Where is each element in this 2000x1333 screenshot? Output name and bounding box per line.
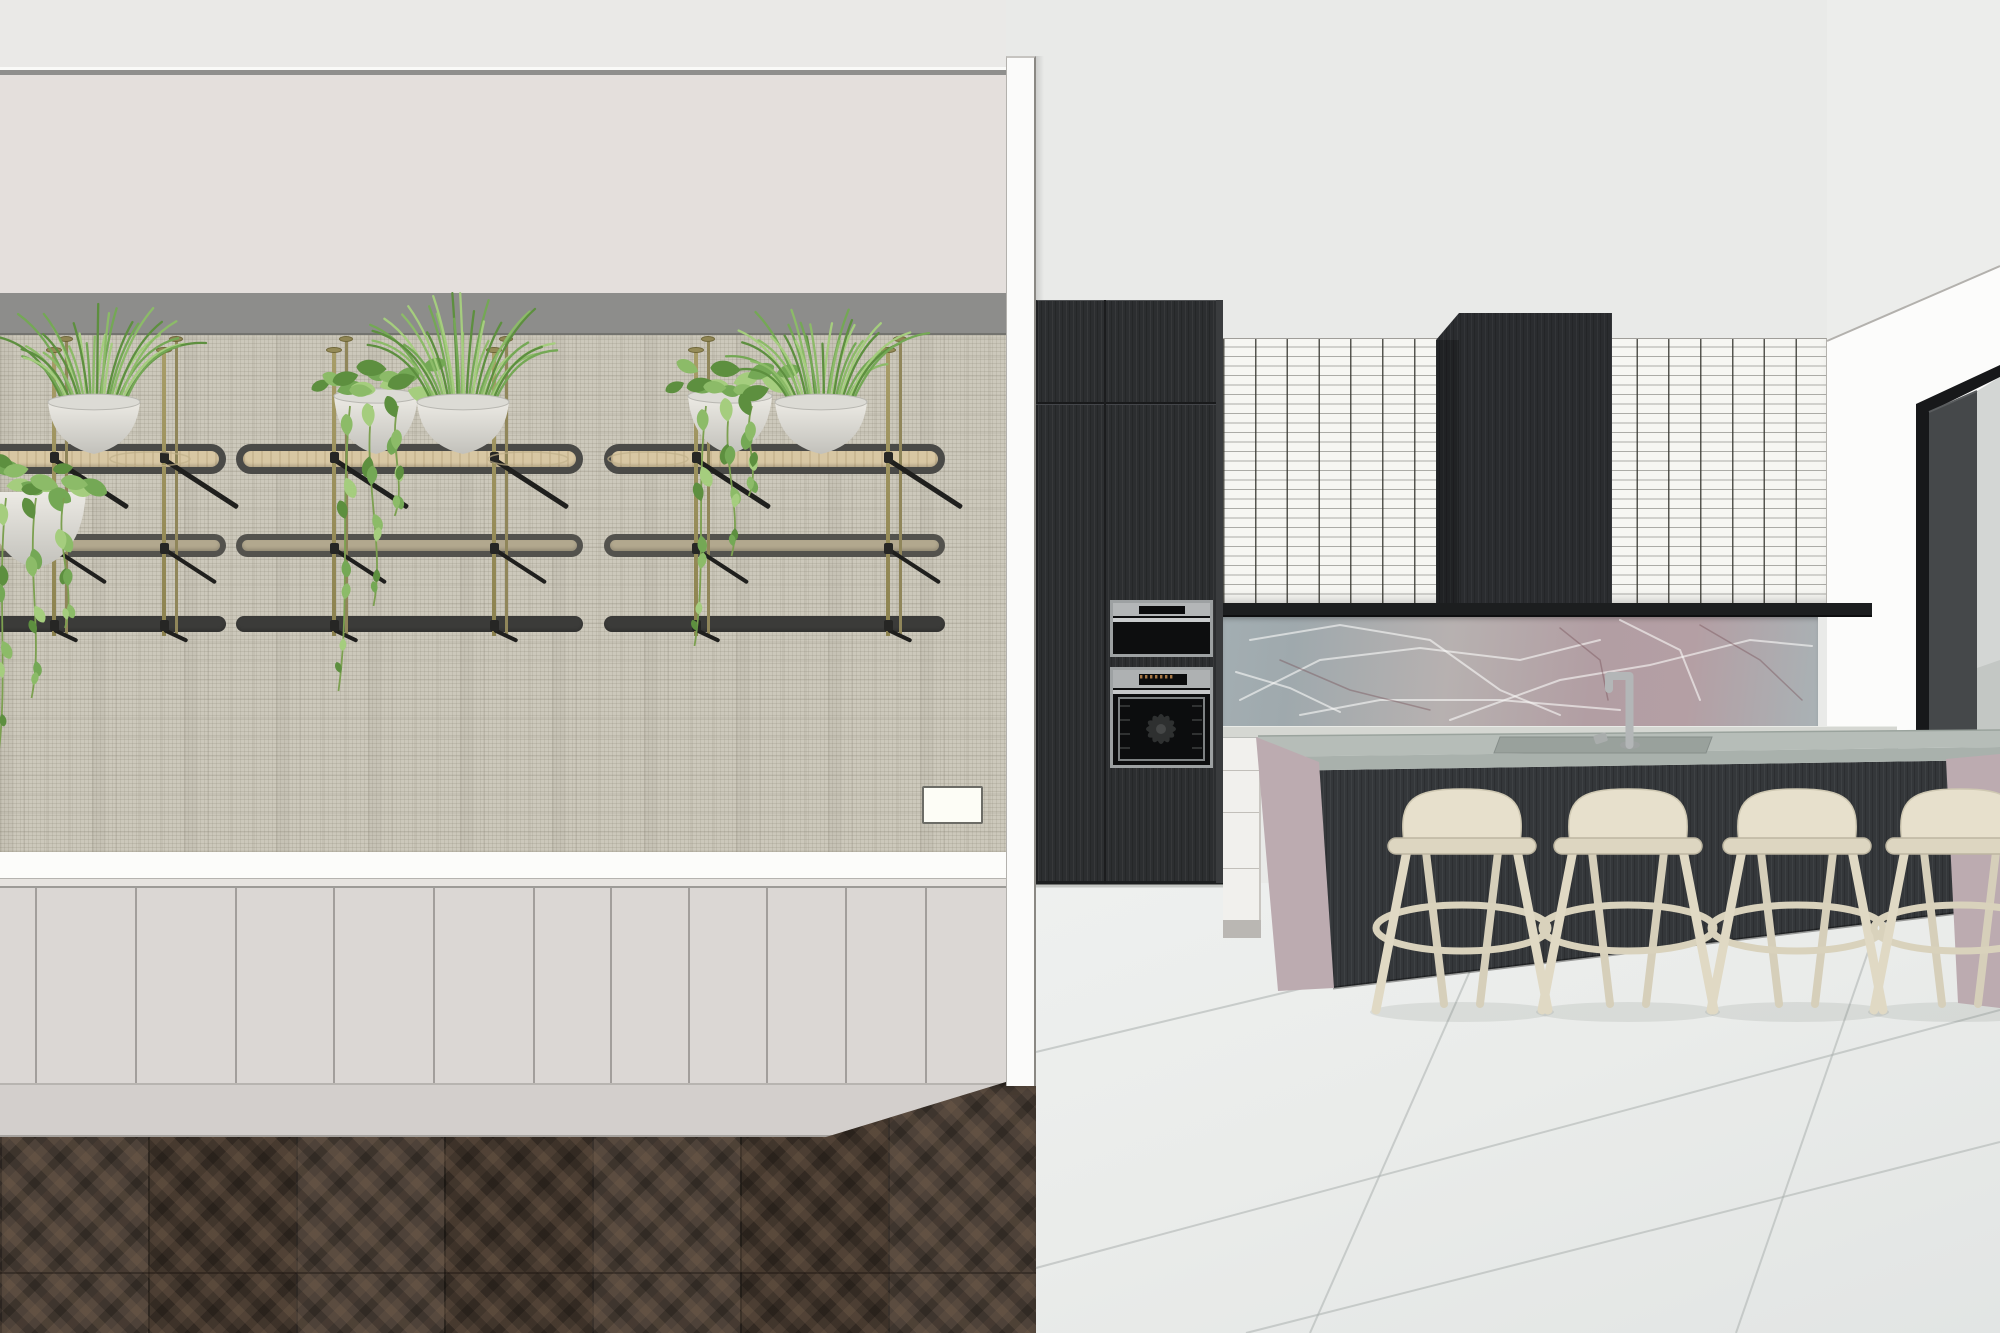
ceiling-mount (169, 336, 183, 342)
back-counter-top (1223, 726, 1897, 738)
shelf-top (0, 444, 226, 474)
shelf-bottom (0, 616, 226, 632)
pole-shelf-joint (884, 543, 893, 554)
vein (1282, 772, 1326, 880)
shelf-suspension-pole (707, 338, 710, 634)
cabinet-door-seam (235, 888, 237, 1083)
ceiling-mount (893, 336, 907, 342)
back-counter-kick (1223, 920, 1261, 938)
pole-shelf-joint (884, 620, 893, 631)
pole-shelf-joint (50, 543, 59, 554)
cabinet-door-seam (925, 888, 927, 1083)
shelf-top (604, 444, 945, 474)
stool-seat (1388, 838, 1536, 854)
island-sink[interactable] (1494, 737, 1712, 753)
shelf-suspension-pole (65, 338, 68, 634)
rangehood-side-facet (1436, 340, 1459, 613)
pole-shelf-joint (160, 452, 169, 463)
cabinet-door-seam (333, 888, 335, 1083)
cabinet-door-seam (35, 888, 37, 1083)
ceiling-mount (486, 347, 502, 353)
ceiling-mount (326, 347, 342, 353)
single-wall-oven[interactable] (1110, 667, 1213, 768)
shelf-suspension-pole (162, 349, 166, 636)
back-counter-drawers[interactable] (1223, 738, 1261, 938)
marble-splashback (1223, 617, 1818, 726)
pole-shelf-joint (50, 620, 59, 631)
oven-handle[interactable] (1113, 690, 1210, 694)
cabinet-door-seam (766, 888, 768, 1083)
drawer-seam (1223, 868, 1259, 869)
wall-divider-panel (1006, 56, 1036, 1086)
cabinet-door-seam (433, 888, 435, 1083)
right-white-wall (1827, 0, 2000, 770)
cabinet-door-seam (845, 888, 847, 1083)
ceiling-mount (499, 336, 513, 342)
oven-display (1139, 674, 1187, 685)
ceiling-mount (701, 336, 715, 342)
stool-backrest (1901, 789, 2000, 846)
pole-shelf-joint (490, 620, 499, 631)
back-counter-end-return (1884, 738, 1898, 752)
black-floating-shelf (1223, 603, 1872, 617)
ceiling-mount (46, 347, 62, 353)
hanging-shelf-units (0, 0, 1006, 900)
pole-shelf-joint (330, 543, 339, 554)
cabinet-door-seam (135, 888, 137, 1083)
pole-shelf-joint (160, 620, 169, 631)
oven-door-glass (1118, 697, 1205, 761)
oven-handle[interactable] (1113, 618, 1210, 622)
tall-cabinet-side-panel (1216, 300, 1223, 883)
shelf-suspension-pole (52, 349, 56, 636)
scene-canvas: 3D interior render - kitchen with dark c… (0, 0, 2000, 1333)
ceiling-mount (688, 347, 704, 353)
pole-shelf-joint (490, 543, 499, 554)
shelf-suspension-pole (505, 338, 508, 634)
vein (1300, 739, 1720, 746)
cabinet-door-seam (533, 888, 535, 1083)
tall-dark-cabinets (1036, 300, 1223, 885)
shelf-suspension-pole (175, 338, 178, 634)
ceiling-mount (880, 347, 896, 353)
shelf-bottom (236, 616, 583, 632)
shelf-suspension-pole (492, 349, 496, 636)
shelf-suspension-pole (899, 338, 902, 634)
pole-shelf-joint (692, 620, 701, 631)
pole-shelf-joint (330, 452, 339, 463)
pole-shelf-joint (330, 620, 339, 631)
light-switch[interactable] (922, 786, 983, 824)
ceiling-mount (59, 336, 73, 342)
compact-wall-oven[interactable] (1110, 600, 1213, 657)
stool-seat (1723, 838, 1871, 854)
kitchen-stone-floor (1036, 883, 2000, 1333)
stool-backrest (1403, 789, 1521, 846)
tall-cabinet-door-seam (1104, 300, 1106, 885)
shelf-suspension-pole (345, 338, 348, 634)
cabinet-door-seam (610, 888, 612, 1083)
pole-shelf-joint (884, 452, 893, 463)
rangehood-box (1436, 313, 1612, 613)
drawer-seam (1223, 812, 1259, 813)
pole-shelf-joint (50, 452, 59, 463)
shelf-middle (236, 534, 583, 557)
pole-shelf-joint (692, 543, 701, 554)
oven-display (1139, 606, 1185, 614)
vein (1962, 800, 1986, 880)
shelf-suspension-pole (332, 349, 336, 636)
stool-seat (1554, 838, 1702, 854)
left-base-cabinets (0, 888, 1006, 1085)
stool-backrest (1569, 789, 1687, 846)
cabinet-door-seam (688, 888, 690, 1083)
ceiling-mount (156, 347, 172, 353)
pole-shelf-joint (490, 452, 499, 463)
shelf-top (236, 444, 583, 474)
stool-backrest (1738, 789, 1856, 846)
shelf-middle (0, 534, 226, 557)
ceiling-mount (339, 336, 353, 342)
stool-seat (1886, 838, 2000, 854)
pole-shelf-joint (692, 452, 701, 463)
tall-cabinet-seam (1036, 402, 1223, 404)
shelf-suspension-pole (886, 349, 890, 636)
pole-shelf-joint (160, 543, 169, 554)
drawer-seam (1223, 770, 1259, 771)
shelf-suspension-pole (694, 349, 698, 636)
